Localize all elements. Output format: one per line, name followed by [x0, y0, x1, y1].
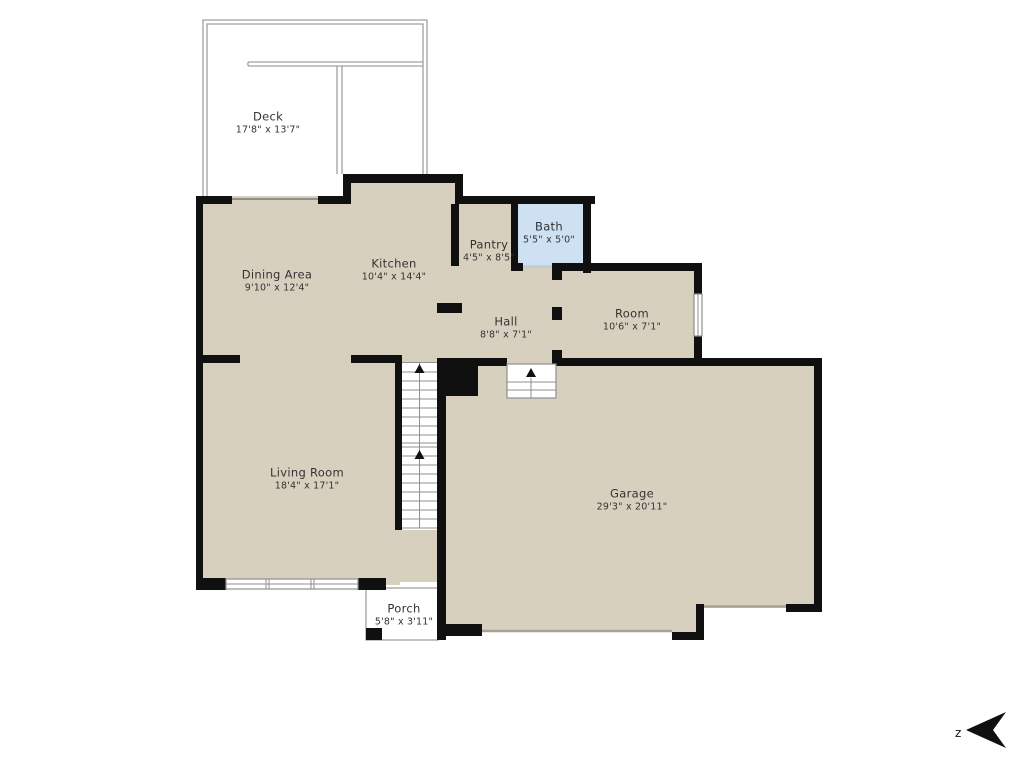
main-staircase [402, 362, 437, 530]
floorplan-canvas: Deck 17'8" x 13'7" Dining Area 9'10" x 1… [0, 0, 1024, 768]
garage-steps [507, 364, 556, 398]
deck-railing [203, 20, 427, 196]
compass-label: z [955, 726, 961, 740]
compass-arrow-icon [966, 712, 1006, 748]
floorplan-drawing [0, 0, 1024, 768]
floor-fills [203, 178, 818, 632]
